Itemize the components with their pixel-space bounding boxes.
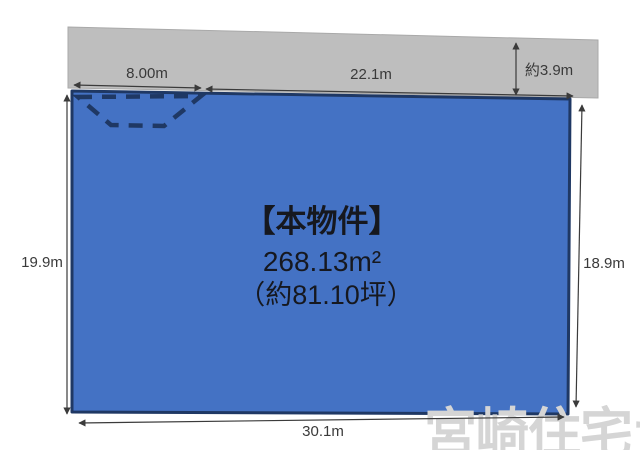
property-title: 【本物件】 [245,204,400,239]
side-right-label: 18.9m [583,255,625,272]
road-depth-label: 約3.9m [525,62,573,79]
bottom-width-label: 30.1m [302,423,344,440]
plot-drawing-svg: 宮崎住宅ナビ 8.00m 22.1m 約3.9m 19.9m 18.9m 30.… [0,0,640,450]
property-area-tsubo: （約81.10坪） [238,280,414,310]
watermark-text: 宮崎住宅ナビ [424,404,640,450]
property-area-sqm: 268.13m² [263,246,381,277]
land-plot-diagram: 宮崎住宅ナビ 8.00m 22.1m 約3.9m 19.9m 18.9m 30.… [0,0,640,450]
side-left-label: 19.9m [21,254,63,271]
dimension-line-side-right [576,105,582,407]
road-area [68,27,598,98]
frontage-left-label: 8.00m [126,65,168,82]
frontage-right-label: 22.1m [350,66,392,83]
